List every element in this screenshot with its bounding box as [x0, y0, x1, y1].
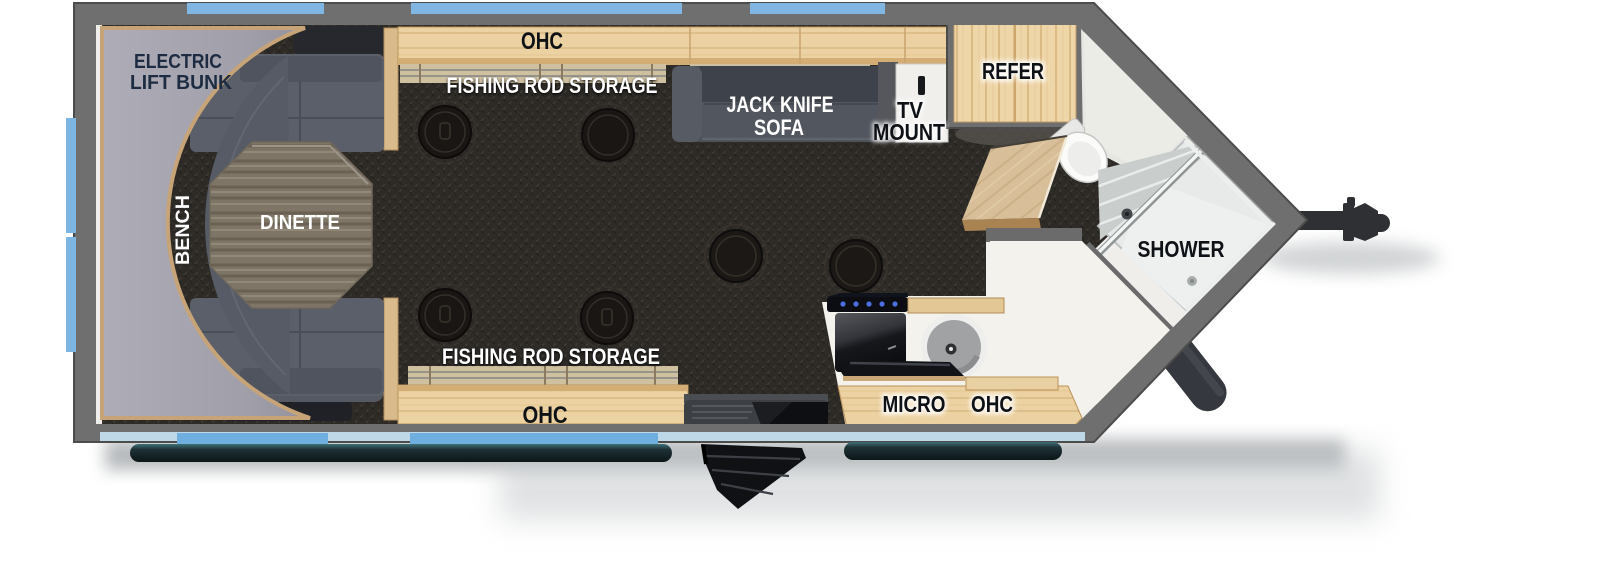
svg-text:BENCH: BENCH — [173, 195, 194, 265]
svg-text:ELECTRIC: ELECTRIC — [134, 51, 222, 73]
svg-text:FISHING ROD STORAGE: FISHING ROD STORAGE — [447, 73, 658, 98]
svg-text:DINETTE: DINETTE — [260, 212, 340, 234]
svg-text:LIFT BUNK: LIFT BUNK — [130, 72, 233, 94]
svg-text:MICRO: MICRO — [883, 391, 946, 417]
svg-text:JACK KNIFE: JACK KNIFE — [727, 92, 834, 117]
svg-text:FISHING ROD STORAGE: FISHING ROD STORAGE — [442, 344, 660, 369]
svg-text:SOFA: SOFA — [754, 115, 804, 140]
svg-text:MOUNT: MOUNT — [873, 119, 945, 145]
svg-text:OHC: OHC — [971, 391, 1013, 417]
svg-text:OHC: OHC — [521, 28, 563, 55]
svg-text:REFER: REFER — [982, 58, 1044, 84]
svg-text:OHC: OHC — [523, 402, 568, 429]
svg-text:SHOWER: SHOWER — [1138, 236, 1225, 262]
